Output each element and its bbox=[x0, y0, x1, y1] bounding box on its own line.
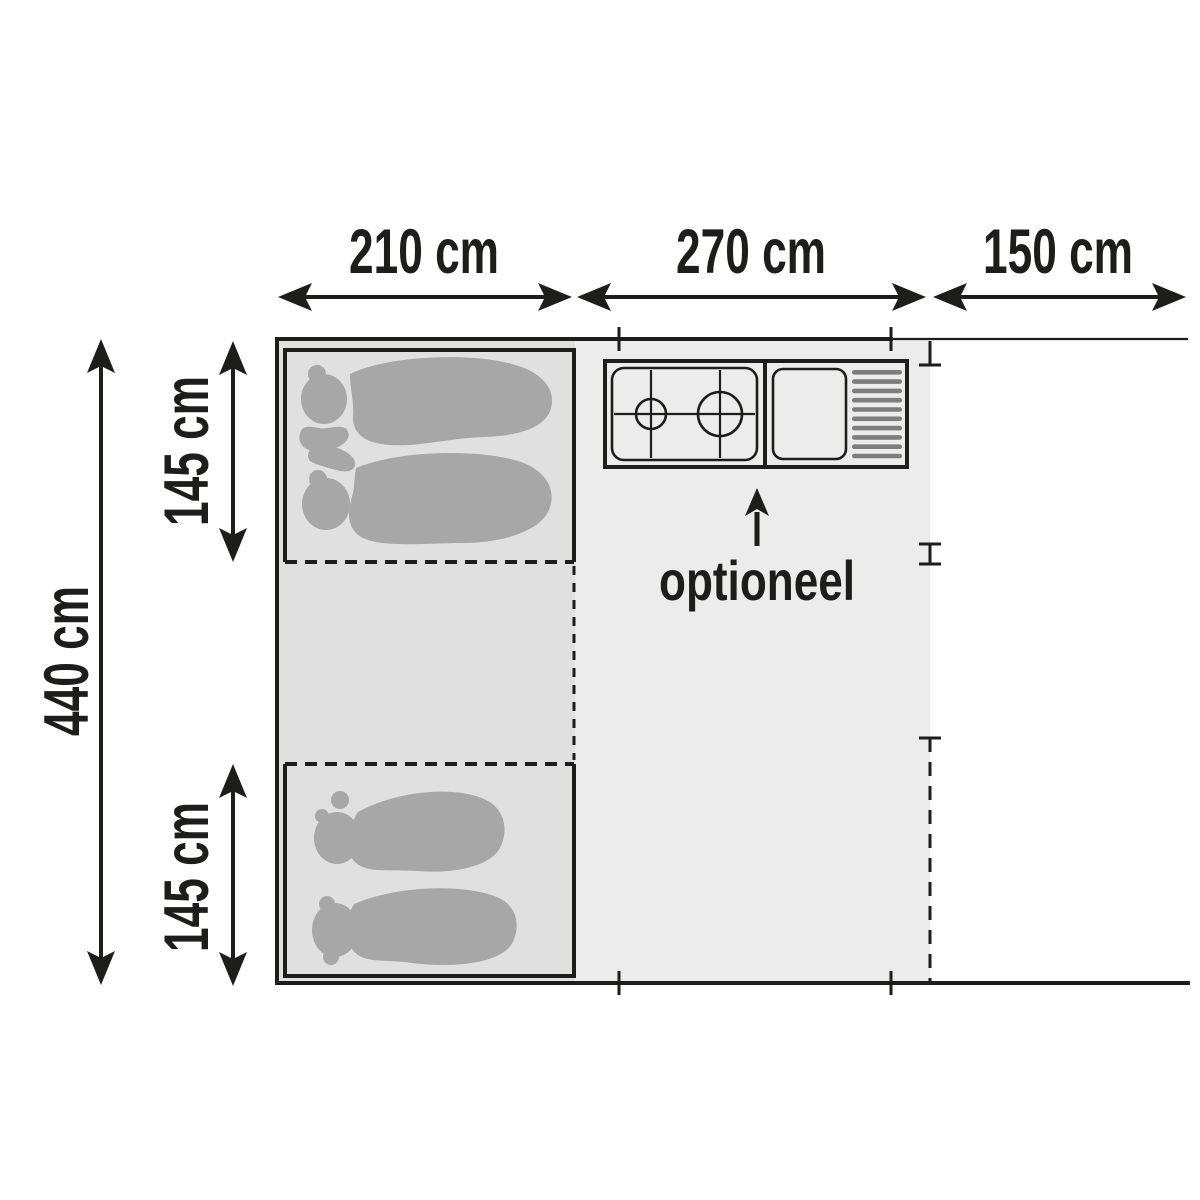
sleeping-bag-body bbox=[347, 888, 517, 965]
dimension-arrow-210 bbox=[278, 283, 572, 311]
drainer-bar bbox=[852, 370, 902, 375]
dimension-arrow-150 bbox=[933, 283, 1186, 311]
drainer-bar bbox=[852, 398, 902, 403]
sleeping-bag-body bbox=[349, 453, 552, 544]
drainer-bar bbox=[852, 454, 902, 459]
sleeping-bag-head bbox=[301, 374, 347, 424]
drainer-bar bbox=[852, 426, 902, 431]
dimension-label-150: 150 cm bbox=[983, 217, 1133, 287]
sleeping-bag-curl bbox=[309, 470, 327, 488]
drainer-bar bbox=[852, 379, 902, 384]
optioneel-label: optioneel bbox=[659, 549, 855, 612]
sleeping-bag-curl bbox=[308, 365, 326, 383]
dimension-arrow-270 bbox=[577, 283, 926, 311]
sleeping-bag-silhouette-bottom-1 bbox=[314, 791, 505, 872]
drainer-bar bbox=[852, 444, 902, 449]
dimension-label-440: 440 cm bbox=[32, 586, 102, 736]
dimension-arrow-145-top bbox=[219, 341, 247, 562]
drainer-bar bbox=[852, 435, 902, 440]
sleeping-bag-curl bbox=[319, 896, 335, 912]
drainer-bar bbox=[852, 417, 902, 422]
dimension-arrow-145-bottom bbox=[219, 764, 247, 986]
sleeping-bag-head bbox=[312, 903, 358, 957]
sleeping-bag-head bbox=[302, 478, 350, 530]
drainer-bar bbox=[852, 389, 902, 394]
dimension-label-145-top: 145 cm bbox=[152, 376, 222, 526]
drainer-bar bbox=[852, 407, 902, 412]
tent-floorplan-diagram: optioneel 210 cm 270 cm 150 cm 440 cm 14… bbox=[0, 0, 1200, 1200]
floorplan-canvas: optioneel 210 cm 270 cm 150 cm 440 cm 14… bbox=[0, 0, 1200, 1200]
sleeping-bag-curl bbox=[323, 949, 339, 965]
dimension-label-270: 270 cm bbox=[676, 217, 826, 287]
sleeping-bag-curl bbox=[315, 809, 329, 823]
dimension-label-145-bottom: 145 cm bbox=[152, 802, 222, 952]
sleeping-bag-curl bbox=[331, 791, 349, 809]
dimension-label-210: 210 cm bbox=[349, 217, 499, 287]
